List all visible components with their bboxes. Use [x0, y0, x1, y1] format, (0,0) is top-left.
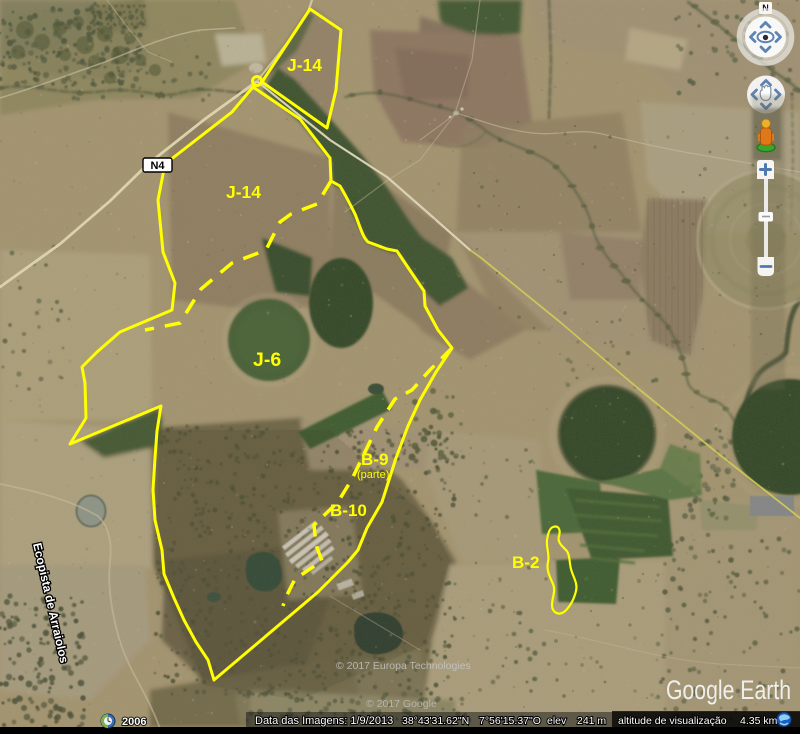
svg-text:© 2017 Google: © 2017 Google	[366, 698, 437, 710]
svg-text:38°43'31.62"N: 38°43'31.62"N	[402, 715, 469, 727]
svg-text:altitude de visualização: altitude de visualização	[618, 715, 727, 727]
svg-text:B-9: B-9	[361, 450, 388, 469]
svg-text:(parte): (parte)	[357, 469, 389, 481]
svg-text:4.35 km: 4.35 km	[740, 715, 778, 727]
svg-text:B-10: B-10	[330, 501, 367, 520]
svg-text:J-14: J-14	[226, 182, 261, 202]
svg-text:241 m: 241 m	[577, 715, 606, 727]
svg-text:J-6: J-6	[253, 349, 281, 371]
svg-text:2006: 2006	[122, 716, 146, 728]
svg-text:© 2017 Europa Technologies: © 2017 Europa Technologies	[336, 660, 471, 672]
svg-text:B-2: B-2	[512, 553, 539, 572]
svg-text:7°56'15.37"O: 7°56'15.37"O	[479, 715, 541, 727]
svg-text:Google Earth: Google Earth	[666, 675, 791, 705]
svg-text:J-14: J-14	[287, 55, 322, 75]
svg-text:elev: elev	[547, 715, 567, 727]
svg-text:N4: N4	[150, 160, 165, 172]
svg-text:Data das Imagens: 1/9/2013: Data das Imagens: 1/9/2013	[255, 715, 393, 727]
